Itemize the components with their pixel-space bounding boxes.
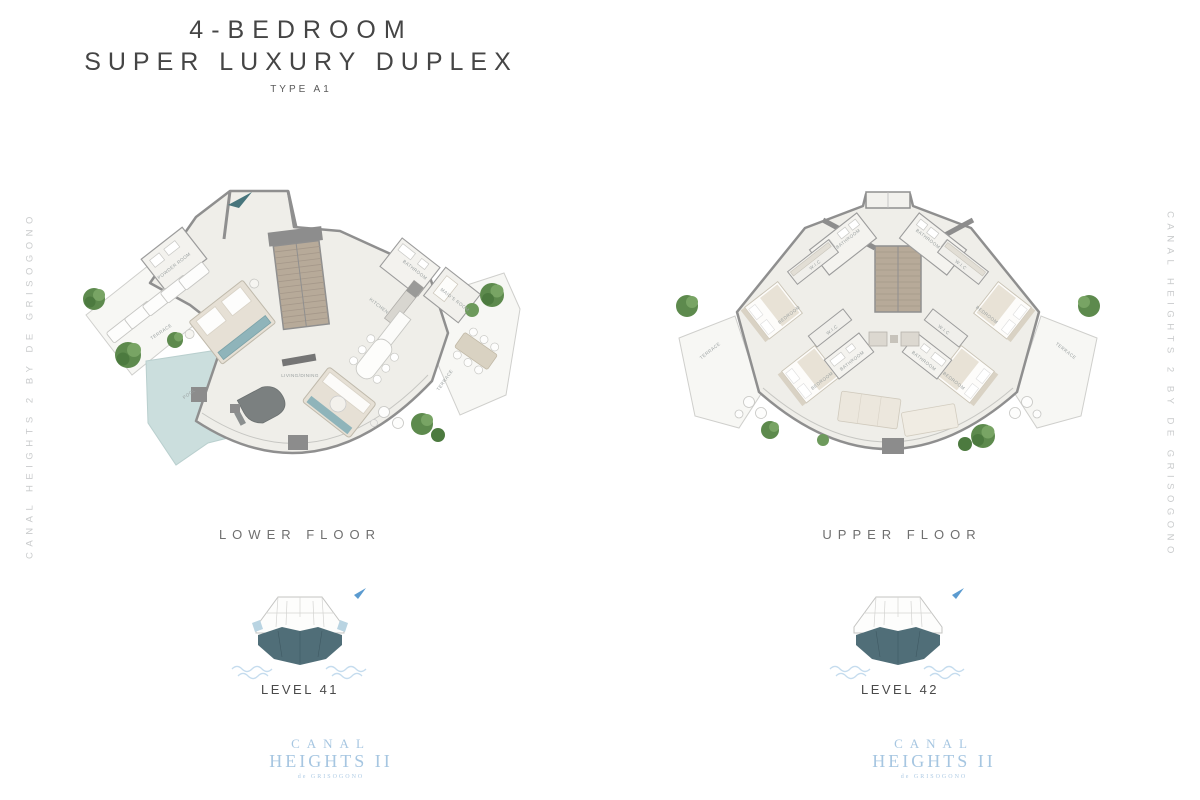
unit-type-label: TYPE A1 [0, 84, 602, 95]
level-label-41: LEVEL 41 [200, 682, 400, 697]
upper-floor-heading: UPPER FLOOR [752, 527, 1052, 542]
brand-logo-line2: HEIGHTS II [246, 752, 416, 770]
brand-logo-line1: CANAL [246, 737, 416, 750]
water-waves [830, 667, 964, 679]
page-title-line1: 4-BEDROOM [0, 16, 602, 45]
upper-floor-plan: TERRACE BATHROOM W.I.C BEDROOM W.I.C BED… [673, 190, 1103, 490]
brand-logo: CANAL HEIGHTS II de GRISOGONO [849, 737, 1019, 780]
keyplan-level-42 [828, 583, 968, 688]
planter [882, 438, 904, 454]
level-label-42: LEVEL 42 [800, 682, 1000, 697]
brand-logo-subtitle: de GRISOGONO [849, 774, 1019, 780]
brand-logo: CANAL HEIGHTS II de GRISOGONO [246, 737, 416, 780]
brand-logo-subtitle: de GRISOGONO [246, 774, 416, 780]
title-block: 4-BEDROOM SUPER LUXURY DUPLEX TYPE A1 [0, 16, 602, 95]
room-label-living-dining: LIVING/DINING [281, 373, 319, 378]
water-waves [232, 667, 366, 679]
watermark-right: CANAL HEIGHTS 2 BY DE GRISOGONO [1165, 211, 1176, 559]
brochure-page: 4-BEDROOM SUPER LUXURY DUPLEX TYPE A1 CA… [0, 0, 1200, 800]
brand-logo-line2: HEIGHTS II [849, 752, 1019, 770]
north-arrow-icon [952, 588, 964, 599]
north-arrow-icon [354, 588, 366, 599]
lower-floor-heading: LOWER FLOOR [150, 527, 450, 542]
page-title-line2: SUPER LUXURY DUPLEX [0, 48, 602, 77]
watermark-left: CANAL HEIGHTS 2 BY DE GRISOGONO [25, 211, 36, 559]
keyplan-level-41 [230, 583, 370, 688]
brand-logo-line1: CANAL [849, 737, 1019, 750]
lower-floor-plan: POWDER ROOM TERRACE POOL LIVING/DINING K… [78, 183, 528, 513]
